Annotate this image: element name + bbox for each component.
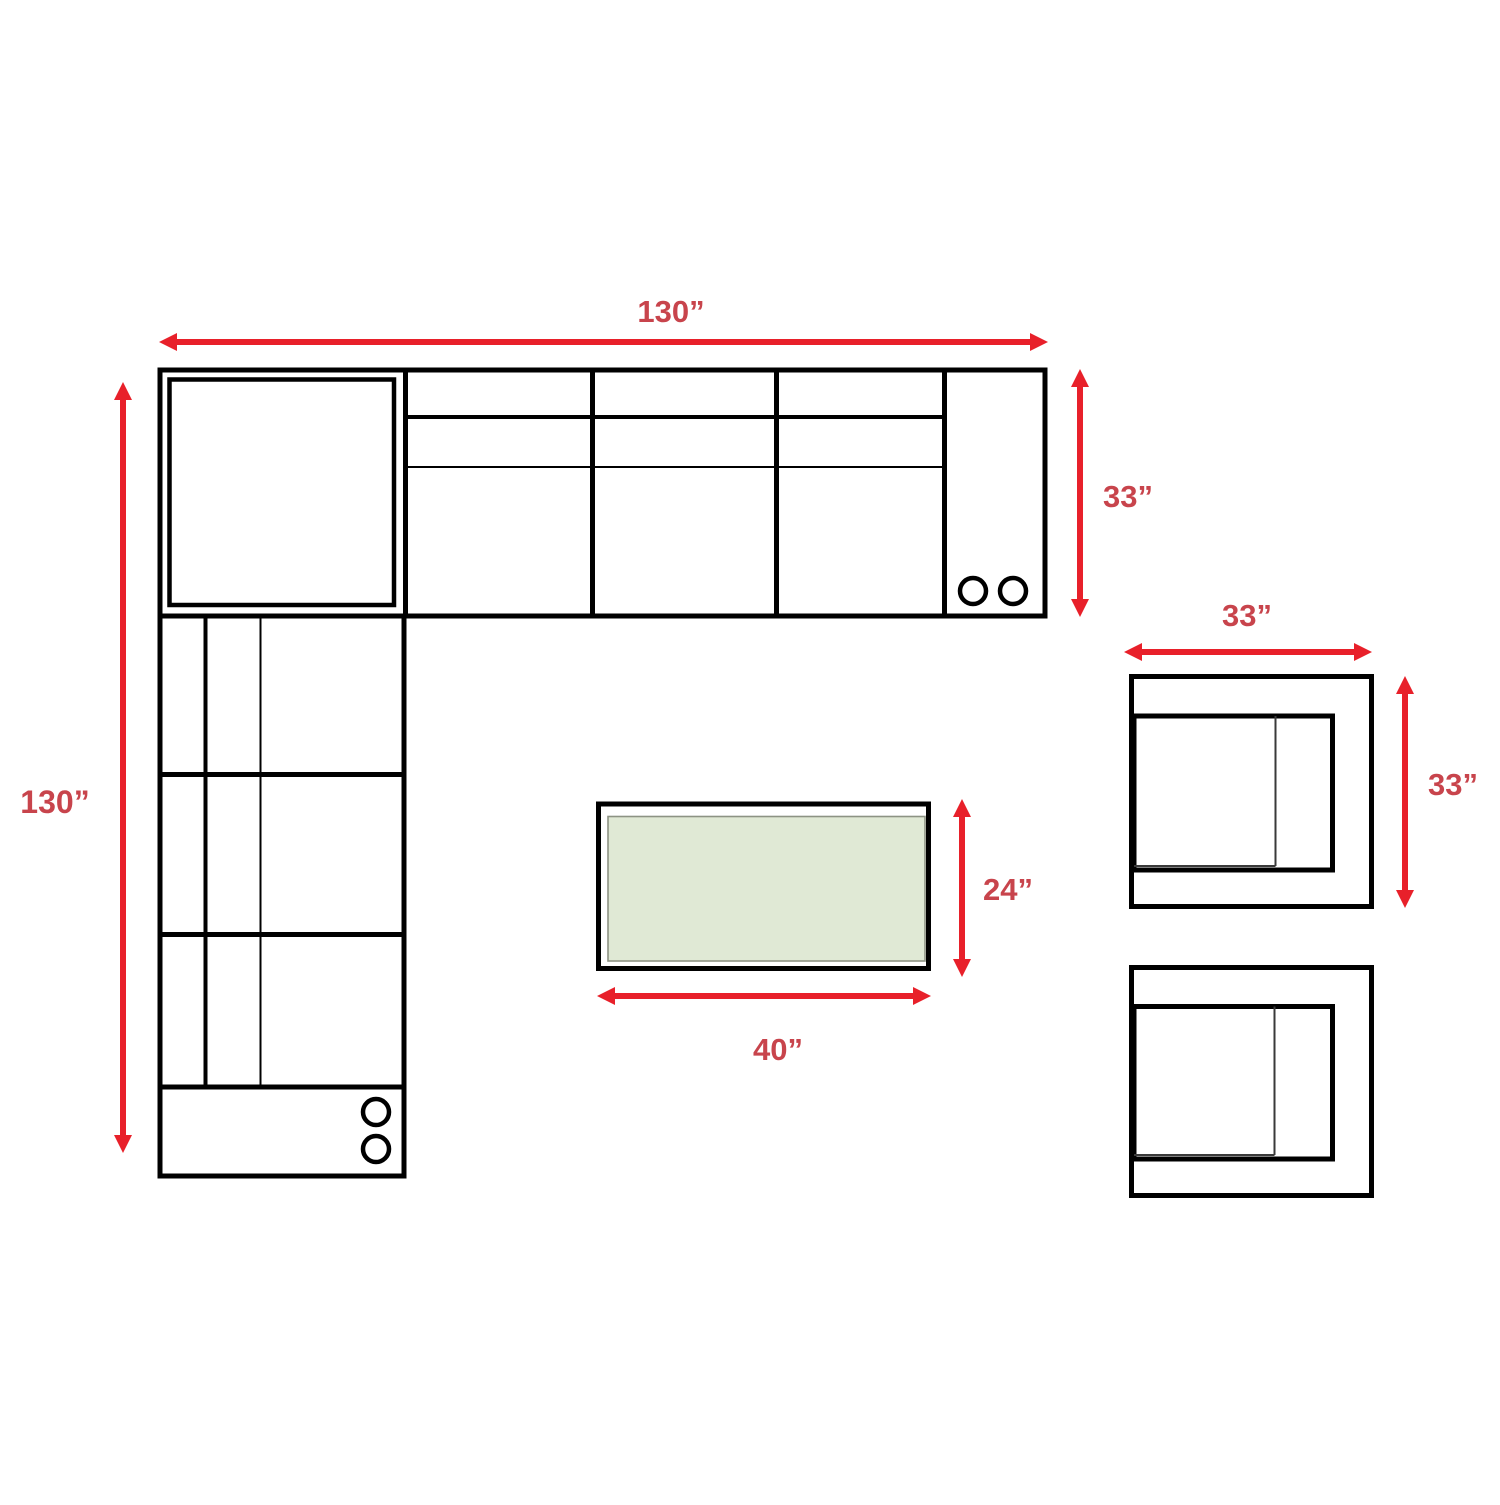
svg-text:40”: 40”: [753, 1032, 803, 1067]
svg-text:33”: 33”: [1222, 598, 1272, 633]
svg-text:24”: 24”: [983, 872, 1033, 907]
svg-text:130”: 130”: [637, 294, 704, 329]
svg-text:130”: 130”: [20, 784, 89, 820]
svg-text:33”: 33”: [1103, 479, 1153, 514]
svg-text:33”: 33”: [1428, 767, 1478, 802]
